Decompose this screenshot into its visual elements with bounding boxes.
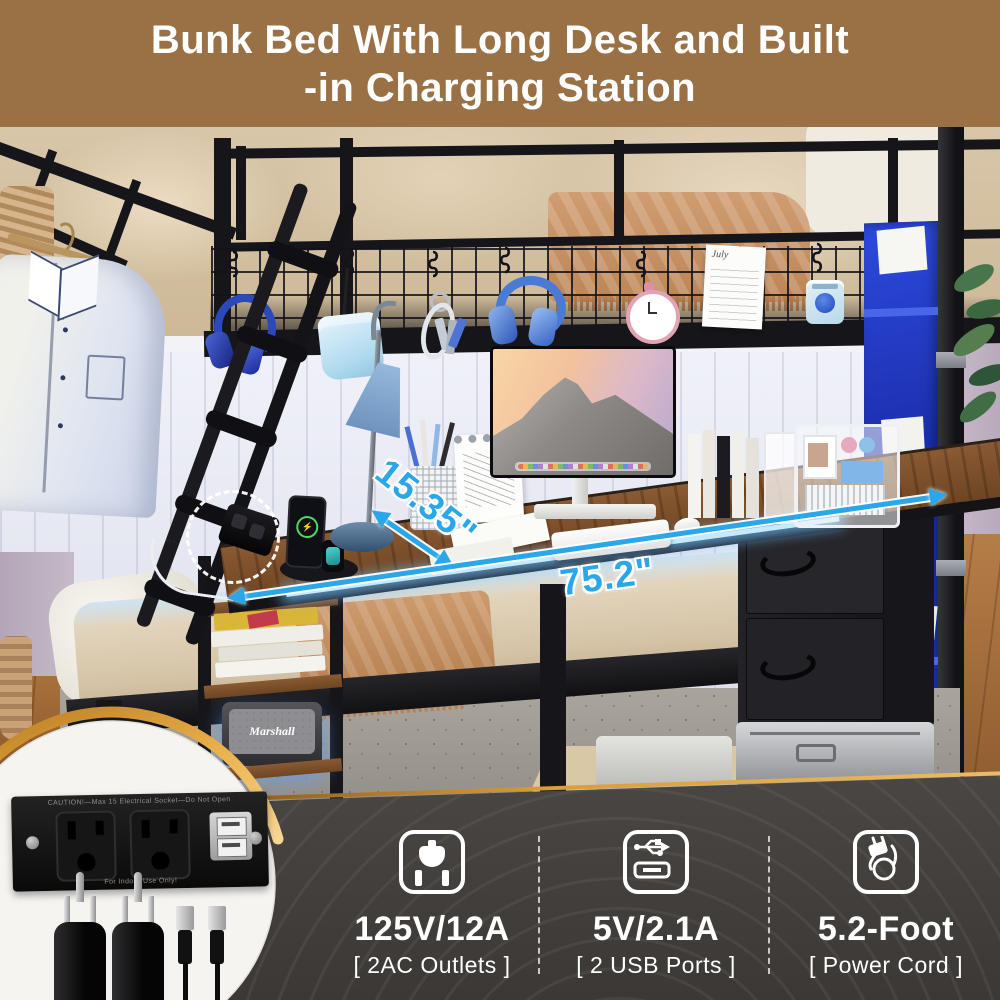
charging-station-highlight-circle [186,490,280,584]
monitor-stand-base [534,504,656,519]
page-title-line2: -in Charging Station [304,64,696,112]
s-hook [496,246,514,280]
post-connector [936,560,966,576]
desk-books [688,426,800,520]
product-image: July Marsha [0,0,1000,1000]
calendar-month-label: July [711,249,728,261]
spec-value: 5.2-Foot [796,910,976,949]
screw [249,831,262,844]
wallpaper-mountain [493,367,673,475]
screw [26,836,39,849]
charging-bolt-icon: ⚡ [296,515,319,538]
page-title-line1: Bunk Bed With Long Desk and Built [151,16,849,64]
spec-divider [768,836,770,974]
lamp-base [330,522,394,552]
lamp-gooseneck [362,290,402,340]
power-cord-icon [853,830,919,894]
rail-post [236,146,246,240]
spec-value: 5V/2.1A [566,910,746,949]
rail-post [614,140,624,238]
speaker-brand-label: Marshall [222,724,322,739]
bed-leg [96,700,122,778]
spec-divider [538,836,540,974]
power-plug [116,872,160,1000]
s-hook [424,250,442,284]
power-outlet-icon [399,830,465,894]
s-hook [224,250,242,284]
spec-caption: [ 2 USB Ports ] [566,952,746,979]
spec-usb: 5V/2.1A [ 2 USB Ports ] [566,830,746,979]
s-hook [808,242,826,282]
alarm-clock [626,282,674,336]
upper-bunk-pillow [806,112,956,237]
usb-ports-module [209,812,252,861]
hanging-shirt [0,254,169,519]
monitor-dock [515,462,652,471]
spec-cord: 5.2-Foot [ Power Cord ] [796,830,976,979]
power-plug [58,872,102,1000]
monitor [490,346,676,478]
headset-blue-icon [488,276,560,356]
spec-caption: [ Power Cord ] [796,952,976,979]
spec-caption: [ 2AC Outlets ] [342,952,522,979]
usb-cable [206,906,228,1000]
usb-icon [623,830,689,894]
s-hook [340,248,358,282]
wicker-basket [0,636,32,740]
keychain [420,292,470,376]
s-hook [632,250,650,284]
spec-outlets: 125V/12A [ 2AC Outlets ] [342,830,522,979]
calendar-card: July [702,244,766,329]
panel-caution-text: CAUTION!—Max 15 Electrical Socket—Do Not… [11,795,267,807]
usb-cable [174,906,196,1000]
hanging-charger-device [806,280,844,324]
phone-on-dock: ⚡ [285,495,327,569]
title-banner: Bunk Bed With Long Desk and Built -in Ch… [0,0,1000,127]
spec-value: 125V/12A [342,910,522,949]
ac-outlet [129,809,190,880]
bluetooth-speaker: Marshall [222,702,322,766]
